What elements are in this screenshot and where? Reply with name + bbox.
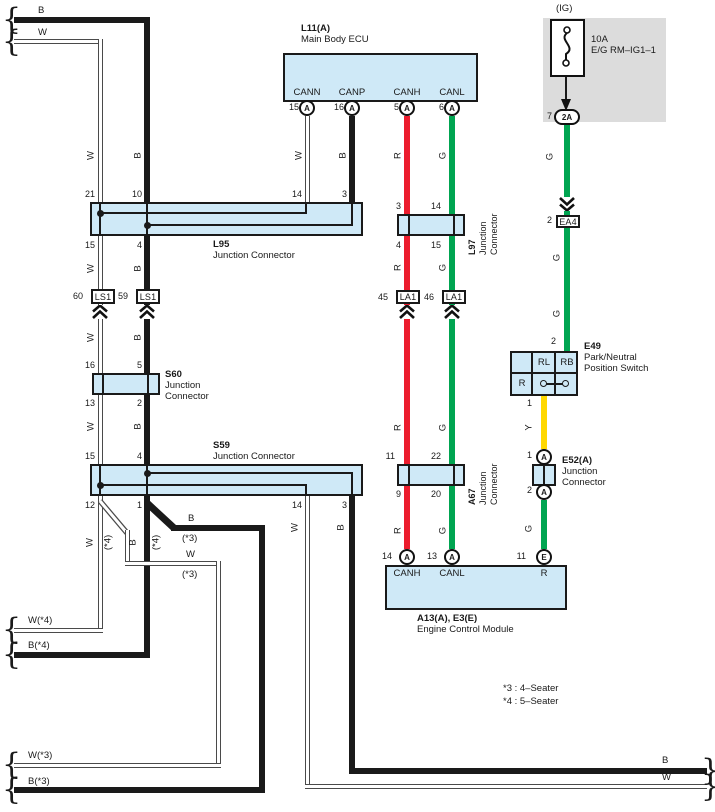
fuse-name: E/G RM–IG1–1 bbox=[591, 45, 656, 56]
wire-label-r: R bbox=[393, 255, 404, 281]
s59-bus-line bbox=[146, 464, 148, 496]
pin-number: 15 bbox=[281, 102, 299, 112]
pin-number: 1 bbox=[514, 398, 532, 408]
l11-id: L11(A) bbox=[301, 23, 330, 34]
a67-divider bbox=[408, 466, 410, 484]
note-seater-3: *3 : 4–Seater bbox=[503, 683, 558, 694]
wire-label-v4: (*4) bbox=[151, 530, 162, 556]
wire-b3-vertical bbox=[259, 525, 265, 793]
note-seater-4: *4 : 5–Seater bbox=[503, 696, 558, 707]
wire-b-top-horizontal bbox=[14, 17, 150, 23]
chevron-up-icon bbox=[91, 305, 109, 319]
wire-label-r: R bbox=[393, 415, 404, 441]
wiring-diagram: 2A EA4 LS1 LS1 LA1 LA1 A A A A A A E A A… bbox=[0, 0, 715, 812]
wire-cann-white bbox=[305, 116, 310, 202]
fuse-tag: (IG) bbox=[556, 3, 572, 14]
pin-number: 12 bbox=[77, 500, 95, 510]
ecm-name: Engine Control Module bbox=[417, 624, 514, 635]
wire-label-w: W bbox=[86, 414, 97, 440]
terminal-circle-a: A bbox=[399, 100, 415, 116]
pin-number: 11 bbox=[377, 451, 395, 461]
e49-name-line1: Park/Neutral bbox=[584, 352, 637, 363]
l11-pin-name: CANH bbox=[389, 87, 425, 98]
pin-number: 5 bbox=[124, 360, 142, 370]
l95-junction-box bbox=[90, 202, 363, 236]
wire-label-g: G bbox=[438, 518, 449, 544]
pin-number: 46 bbox=[416, 292, 434, 302]
wire-w-top-horizontal bbox=[14, 39, 102, 44]
pin-number: 1 bbox=[124, 500, 142, 510]
wire-label-r: R bbox=[393, 518, 404, 544]
edge-label-b-bottom: B bbox=[662, 755, 668, 766]
l97-divider bbox=[453, 216, 455, 234]
pin-number: 15 bbox=[77, 451, 95, 461]
terminal-circle-e: E bbox=[536, 549, 552, 565]
wire-neutral-yellow bbox=[541, 396, 547, 449]
wire-label-b: B bbox=[133, 414, 144, 440]
chevron-up-icon bbox=[138, 305, 156, 319]
edge-label-b4: B(*4) bbox=[28, 640, 50, 651]
e49-name-line2: Position Switch bbox=[584, 363, 648, 374]
e52-name-line1: Junction bbox=[562, 466, 597, 477]
s59-bus-line bbox=[305, 484, 307, 496]
fuse-lead-line bbox=[565, 77, 567, 101]
wire-label-w: W bbox=[290, 515, 301, 541]
pin-number: 11 bbox=[508, 551, 526, 561]
l95-bus-line bbox=[99, 212, 307, 214]
s60-divider bbox=[147, 375, 149, 393]
s59-bus-line bbox=[99, 464, 101, 496]
wire-label-g: G bbox=[438, 255, 449, 281]
connector-ea4: EA4 bbox=[556, 215, 580, 228]
e52-divider bbox=[543, 466, 545, 484]
wire-label-v3: (*3) bbox=[182, 533, 197, 544]
continuation-brace: { bbox=[2, 775, 21, 805]
e49-id: E49 bbox=[584, 341, 601, 352]
l97-name-line2: Connector bbox=[489, 195, 500, 255]
wire-label-b: B bbox=[133, 143, 144, 169]
l95-bus-line bbox=[351, 202, 353, 226]
wire-label-w: W bbox=[86, 256, 97, 282]
l95-bus-line bbox=[305, 202, 307, 214]
l11-pin-name: CANN bbox=[289, 87, 325, 98]
wire-label-g: G bbox=[438, 143, 449, 169]
s59-junction-box bbox=[90, 464, 363, 496]
pin-number: 20 bbox=[423, 489, 441, 499]
a67-label: A67 Junction Connector bbox=[467, 445, 503, 505]
l95-bus-line bbox=[99, 202, 101, 236]
pin-number: 3 bbox=[329, 500, 347, 510]
pin-number: 10 bbox=[124, 189, 142, 199]
ecm-pin-name: CANH bbox=[389, 568, 425, 579]
pin-number: 3 bbox=[329, 189, 347, 199]
terminal-circle-a: A bbox=[399, 549, 415, 565]
pin-number: 3 bbox=[383, 201, 401, 211]
edge-label-b-top: B bbox=[38, 5, 44, 16]
s59-bus-line bbox=[146, 472, 353, 474]
pin-number: 9 bbox=[383, 489, 401, 499]
wire-label-v3: (*3) bbox=[182, 569, 197, 580]
e49-cell-r: R bbox=[512, 378, 532, 389]
edge-label-w4: W(*4) bbox=[28, 615, 52, 626]
wire-canp-black bbox=[349, 116, 355, 202]
chevron-down-icon bbox=[558, 197, 576, 211]
l95-junction-dot bbox=[144, 222, 151, 229]
e52-name-line2: Connector bbox=[562, 477, 606, 488]
fuse-element-icon bbox=[550, 19, 585, 77]
continuation-brace: { bbox=[2, 27, 21, 57]
wire-b-s59-pin3 bbox=[349, 496, 355, 774]
pin-number: 60 bbox=[65, 291, 83, 301]
pin-number: 45 bbox=[370, 292, 388, 302]
pin-number: 4 bbox=[383, 240, 401, 250]
terminal-circle-a: A bbox=[299, 100, 315, 116]
pin-number: 4 bbox=[124, 240, 142, 250]
wire-label-b: B bbox=[128, 530, 139, 556]
wire-label-g: G bbox=[552, 301, 563, 327]
wire-b3-horizontal-bottom bbox=[14, 787, 265, 793]
wire-label-b: B bbox=[336, 515, 347, 541]
pin-number: 14 bbox=[284, 189, 302, 199]
edge-label-b3: B(*3) bbox=[28, 776, 50, 787]
terminal-circle-a: A bbox=[344, 100, 360, 116]
wire-label-b: B bbox=[188, 513, 194, 524]
s60-name-line1: Junction bbox=[165, 380, 200, 391]
wire-label-g: G bbox=[552, 245, 563, 271]
l95-bus-line bbox=[146, 224, 353, 226]
s59-bus-line bbox=[99, 484, 307, 486]
pin-number: 15 bbox=[423, 240, 441, 250]
pin-number: 22 bbox=[423, 451, 441, 461]
wire-label-w: W bbox=[86, 143, 97, 169]
connector-ls1-right: LS1 bbox=[136, 289, 160, 304]
wire-ig-green-lower bbox=[564, 228, 570, 351]
e49-cell-rl: RL bbox=[534, 357, 554, 368]
pin-number: 5 bbox=[381, 102, 399, 112]
wire-w3-horizontal-bottom bbox=[14, 763, 221, 768]
terminal-2a: 2A bbox=[554, 109, 580, 125]
edge-label-w3: W(*3) bbox=[28, 750, 52, 761]
pin-number: 16 bbox=[326, 102, 344, 112]
wire-w3-horizontal-mid bbox=[125, 561, 220, 566]
l97-label: L97 Junction Connector bbox=[467, 195, 503, 255]
pin-number: 14 bbox=[423, 201, 441, 211]
terminal-circle-a: A bbox=[536, 484, 552, 500]
wire-label-y: Y bbox=[524, 415, 535, 441]
pin-number: 59 bbox=[110, 291, 128, 301]
continuation-brace: { bbox=[2, 640, 21, 670]
wire-b3-horizontal-mid bbox=[171, 525, 265, 531]
wire-label-w: W bbox=[85, 530, 96, 556]
edge-label-w-top: W bbox=[38, 27, 47, 38]
fuse-rating: 10A bbox=[591, 34, 608, 45]
e49-switch-contact bbox=[562, 380, 569, 387]
wire-e52-green bbox=[541, 500, 547, 549]
pin-number: 13 bbox=[419, 551, 437, 561]
ecm-pin-name: R bbox=[526, 568, 562, 579]
e52-id: E52(A) bbox=[562, 455, 592, 466]
l95-junction-dot bbox=[97, 210, 104, 217]
pin-number: 2 bbox=[514, 485, 532, 495]
s60-divider bbox=[102, 375, 104, 393]
wire-label-b: B bbox=[133, 325, 144, 351]
wire-b-bottom-horizontal bbox=[349, 768, 707, 774]
s59-bus-line bbox=[351, 472, 353, 496]
wire-label-g: G bbox=[438, 415, 449, 441]
pin-number: 21 bbox=[77, 189, 95, 199]
ecm-id: A13(A), E3(E) bbox=[417, 613, 477, 624]
wire-w3-vertical bbox=[216, 561, 221, 768]
l95-name: Junction Connector bbox=[213, 250, 295, 261]
l95-bus-line bbox=[146, 202, 148, 236]
wire-label-g: G bbox=[524, 516, 535, 542]
edge-label-w-bottom: W bbox=[662, 772, 671, 783]
wire-label-b: B bbox=[133, 256, 144, 282]
pin-number: 2 bbox=[124, 398, 142, 408]
s59-junction-dot bbox=[144, 470, 151, 477]
ecm-pin-name: CANL bbox=[434, 568, 470, 579]
pin-number: 1 bbox=[514, 450, 532, 460]
e49-switch-contact bbox=[540, 380, 547, 387]
pin-number: 6 bbox=[426, 102, 444, 112]
a67-name-line1: Junction bbox=[478, 445, 489, 505]
pin-number: 15 bbox=[77, 240, 95, 250]
continuation-brace: } bbox=[701, 772, 715, 802]
pin-number: 14 bbox=[374, 551, 392, 561]
l11-name: Main Body ECU bbox=[301, 34, 369, 45]
e49-cell-rb: RB bbox=[557, 357, 577, 368]
l11-pin-name: CANP bbox=[334, 87, 370, 98]
s59-junction-dot bbox=[97, 482, 104, 489]
pin-number: 2 bbox=[534, 215, 552, 225]
s60-id: S60 bbox=[165, 369, 182, 380]
wire-b4-horizontal bbox=[14, 652, 150, 658]
wire-label-r: R bbox=[393, 143, 404, 169]
wire-label-w: W bbox=[186, 549, 195, 560]
s59-name: Junction Connector bbox=[213, 451, 295, 462]
wire-w-s59-pin14 bbox=[305, 496, 310, 789]
s59-id: S59 bbox=[213, 440, 230, 451]
wire-label-b: B bbox=[338, 143, 349, 169]
wire-w-bottom-horizontal bbox=[305, 784, 707, 789]
chevron-up-icon bbox=[398, 305, 416, 319]
pin-number: 2 bbox=[538, 336, 556, 346]
wire-label-g: G bbox=[545, 144, 556, 170]
e49-grid-line bbox=[512, 372, 576, 374]
a67-id: A67 bbox=[467, 445, 478, 505]
wire-label-v4: (*4) bbox=[103, 530, 114, 556]
terminal-circle-a: A bbox=[536, 449, 552, 465]
pin-number: 16 bbox=[77, 360, 95, 370]
pin-number: 4 bbox=[124, 451, 142, 461]
l97-name-line1: Junction bbox=[478, 195, 489, 255]
l97-id: L97 bbox=[467, 195, 478, 255]
terminal-circle-a: A bbox=[444, 100, 460, 116]
wire-label-w: W bbox=[294, 143, 305, 169]
chevron-up-icon bbox=[443, 305, 461, 319]
s60-name-line2: Connector bbox=[165, 391, 209, 402]
wire-label-w: W bbox=[86, 325, 97, 351]
l97-divider bbox=[408, 216, 410, 234]
wire-w4-horizontal bbox=[14, 628, 103, 633]
pin-number: 13 bbox=[77, 398, 95, 408]
connector-la1-right: LA1 bbox=[442, 290, 466, 304]
a67-name-line2: Connector bbox=[489, 445, 500, 505]
terminal-circle-a: A bbox=[444, 549, 460, 565]
pin-number: 7 bbox=[534, 111, 552, 121]
a67-divider bbox=[453, 466, 455, 484]
l11-pin-name: CANL bbox=[434, 87, 470, 98]
pin-number: 14 bbox=[284, 500, 302, 510]
l95-id: L95 bbox=[213, 239, 229, 250]
